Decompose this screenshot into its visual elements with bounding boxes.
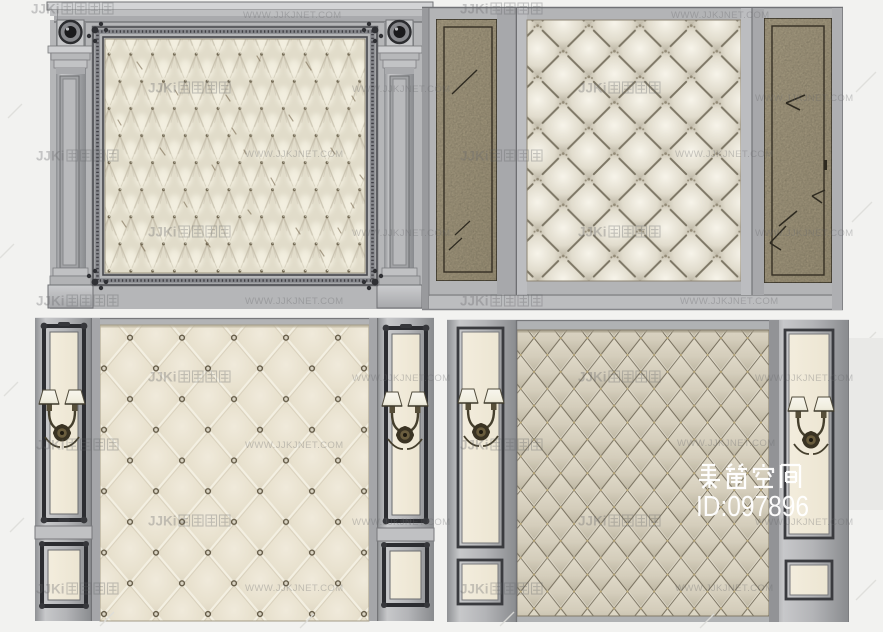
svg-text:WWW.JJKJNET.COM: WWW.JJKJNET.COM — [671, 10, 770, 21]
svg-text:WWW.JJKJNET.COM: WWW.JJKJNET.COM — [352, 517, 451, 528]
svg-text:WWW.JJKJNET.COM: WWW.JJKJNET.COM — [352, 84, 451, 95]
svg-text:WWW.JJKJNET.COM: WWW.JJKJNET.COM — [245, 440, 344, 451]
svg-text:WWW.JJKJNET.COM: WWW.JJKJNET.COM — [675, 149, 774, 160]
svg-text:WWW.JJKJNET.COM: WWW.JJKJNET.COM — [677, 438, 776, 449]
svg-text:ID:097896: ID:097896 — [696, 490, 809, 522]
svg-text:WWW.JJKJNET.COM: WWW.JJKJNET.COM — [245, 583, 344, 594]
svg-text:WWW.JJKJNET.COM: WWW.JJKJNET.COM — [755, 228, 854, 239]
svg-text:WWW.JJKJNET.COM: WWW.JJKJNET.COM — [755, 373, 854, 384]
svg-text:WWW.JJKJNET.COM: WWW.JJKJNET.COM — [243, 10, 342, 21]
svg-text:WWW.JJKJNET.COM: WWW.JJKJNET.COM — [245, 296, 344, 307]
svg-text:WWW.JJKJNET.COM: WWW.JJKJNET.COM — [352, 373, 451, 384]
svg-text:WWW.JJKJNET.COM: WWW.JJKJNET.COM — [675, 583, 774, 594]
svg-text:WWW.JJKJNET.COM: WWW.JJKJNET.COM — [755, 93, 854, 104]
svg-text:WWW.JJKJNET.COM: WWW.JJKJNET.COM — [245, 149, 344, 160]
svg-text:WWW.JJKJNET.COM: WWW.JJKJNET.COM — [680, 296, 779, 307]
svg-text:WWW.JJKJNET.COM: WWW.JJKJNET.COM — [352, 228, 451, 239]
